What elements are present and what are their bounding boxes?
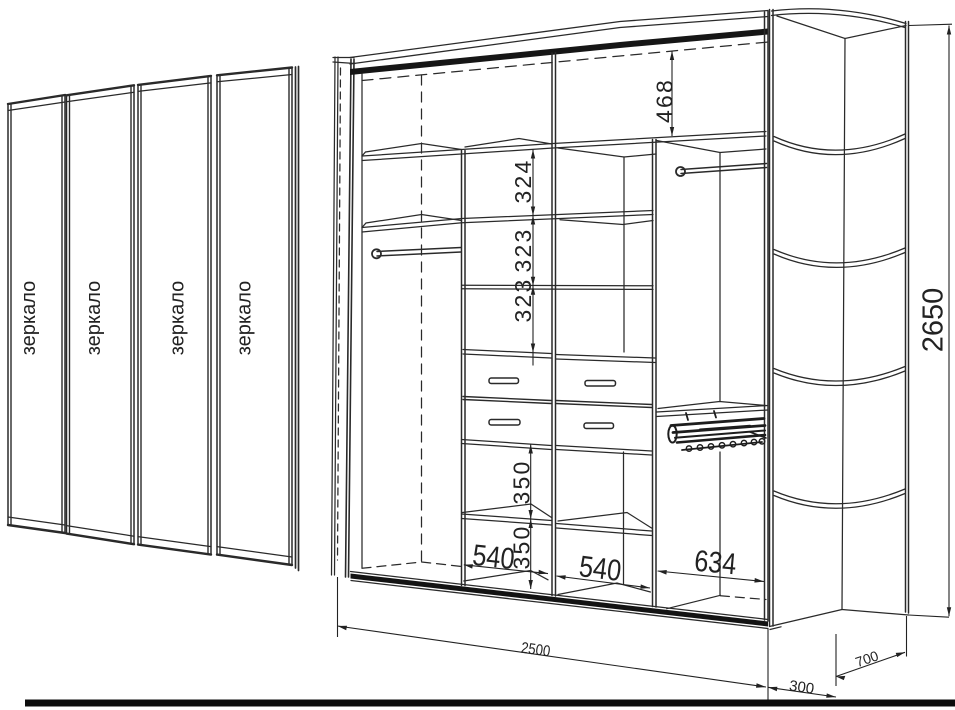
svg-text:324: 324: [510, 159, 536, 204]
svg-text:300: 300: [788, 677, 815, 697]
svg-text:зеркало: зеркало: [18, 281, 40, 356]
svg-text:323: 323: [510, 278, 536, 323]
svg-text:2650: 2650: [918, 288, 950, 353]
svg-text:зеркало: зеркало: [83, 281, 105, 356]
svg-text:зеркало: зеркало: [234, 281, 256, 356]
svg-text:зеркало: зеркало: [167, 281, 189, 356]
svg-text:350: 350: [509, 460, 535, 505]
svg-text:540: 540: [471, 538, 516, 576]
svg-text:540: 540: [577, 549, 623, 587]
svg-text:468: 468: [652, 78, 678, 123]
svg-text:634: 634: [693, 544, 738, 581]
svg-text:323: 323: [510, 228, 536, 273]
